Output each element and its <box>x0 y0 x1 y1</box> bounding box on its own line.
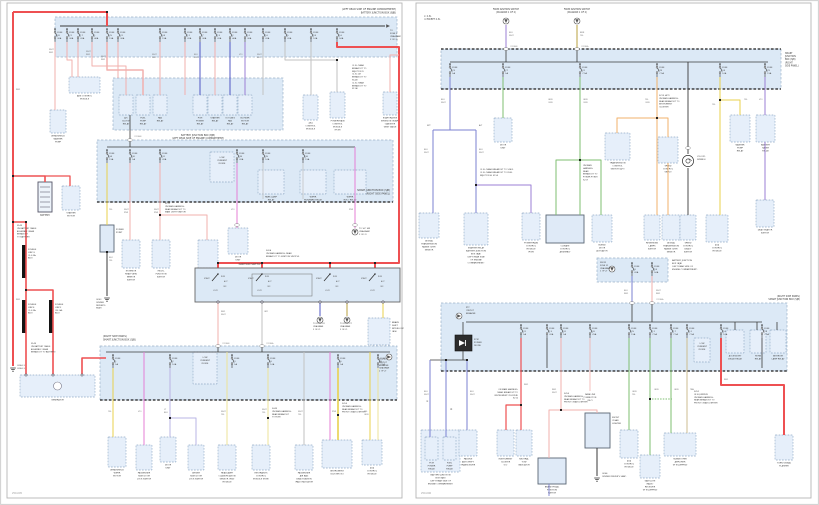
passenger-door-lock-switch <box>136 445 152 470</box>
smart-junction-box-right-top <box>441 49 781 89</box>
pad-indicator-caption: (PAD) INDICATOR <box>295 480 313 483</box>
powertrain-control-module-top-caption: CONTROL <box>332 123 343 125</box>
fuse-label: 10A <box>313 37 318 40</box>
fuse-symbol <box>159 31 161 33</box>
ignition-position-label: RUN <box>265 276 270 278</box>
dtr-sensor-1-caption: DIGITAL <box>425 239 434 242</box>
fuse-label: FUSE <box>634 266 640 268</box>
instrument-cluster-left-caption: CLUSTER (IC) <box>330 473 344 475</box>
restraints-control-module-caption: CONTROL <box>256 475 267 477</box>
diagram-text: FUSE 3 <box>390 33 398 35</box>
power-point <box>100 225 114 252</box>
diagram-text: (LEFT REAR SIDE OF <box>672 265 694 268</box>
low-current-diode-right-caption: LOW <box>700 343 705 345</box>
fuse-symbol <box>656 72 658 74</box>
fuse-label: FUSE <box>265 32 271 34</box>
fuse-symbol <box>579 72 581 74</box>
connector-oval <box>260 345 265 348</box>
fuse-label: FUSE <box>109 32 115 34</box>
diagram-text: WHT <box>152 54 157 56</box>
headlamp-classification-module-caption: HEADLAMP/ <box>221 471 234 474</box>
fusible-link-caption: FUSIBLE <box>28 304 37 306</box>
turn-signal-flasher <box>775 435 793 460</box>
diagram-text: (LEFT REAR SIDE OF ENGINE COMPARTMENT) <box>172 137 224 140</box>
multi-function-switch-caption: SWITCH <box>157 276 166 278</box>
fuse-symbol <box>159 158 161 160</box>
fuse-symbol <box>231 363 233 365</box>
4x4-control-module-right-bottom <box>620 430 638 458</box>
diagram-text: S255 <box>342 403 348 405</box>
fuse-symbol <box>184 31 186 33</box>
pad-indicator-caption: AIR BAG <box>300 474 309 477</box>
diagram-text: INJECTOR 4) S114 <box>480 175 499 177</box>
windshield-wiper-motor-caption: WINDSHIELD <box>110 469 124 471</box>
starter-relay-bjb-caption: BATTERY JUNCTION <box>466 249 486 252</box>
fuel-pump-relay-2-caption: FUEL <box>447 462 453 464</box>
fuse-symbol <box>244 37 246 39</box>
diagram-text: WHT <box>124 209 129 211</box>
instrument-cluster-right <box>497 430 514 456</box>
fuse-symbol <box>267 363 269 365</box>
powertrain-control-module-top-caption: POWERTRAIN <box>331 119 345 122</box>
fuse-label: FUSE <box>162 32 168 34</box>
fuse-label: 10A <box>265 158 270 161</box>
brake-pedal-position-switch-caption: BRAKE PEDAL <box>545 485 560 488</box>
splice-node <box>445 359 447 361</box>
diagram-text: C2280A <box>266 342 274 345</box>
diagram-text: WHT <box>424 152 429 154</box>
splice-node <box>12 221 14 223</box>
climate-control-assembly-caption: ASSEMBLY <box>560 250 571 253</box>
diagram-text: (DLC) <box>587 400 593 402</box>
diagram-text: 250-005 <box>12 492 22 495</box>
starter-relay-bjb-caption: STARTER RELAY <box>468 246 485 249</box>
diagram-text: TO FUSE 27 <box>340 323 352 325</box>
fuse-symbol <box>236 152 238 154</box>
passive-anti-theft-transceiver-caption: TRANSCEIVER <box>461 463 476 466</box>
washer-pump-relay <box>730 115 750 142</box>
fuse-label: FUSE <box>69 32 75 34</box>
diagram-text: TO BATTERY) <box>17 236 30 239</box>
pcm-power-relay-caption: PCM <box>198 117 203 119</box>
ignition-position-label: OFF <box>380 286 383 288</box>
exterior-mirror-switch-caption: REAR VIEW <box>125 272 137 275</box>
fuse-label: 20A <box>239 158 244 161</box>
low-current-diode-mid-caption: LOW <box>220 157 225 159</box>
fuse-label: 10A <box>270 363 275 366</box>
fuel-pump-relay-caption: PUMP <box>140 120 147 122</box>
diagram-text: S204 <box>266 250 272 252</box>
fusible-link-caption: BLK) <box>28 313 33 315</box>
fuse-symbol <box>686 327 688 329</box>
fuse-symbol <box>764 72 766 74</box>
diagram-text: POWER POINT) <box>583 177 598 179</box>
diagram-text: (IN MAIN HARNESS, <box>165 205 185 208</box>
starter-relay-bjb-caption: (LEFT REAR SIDE <box>467 255 485 258</box>
windshield-washer-pump-caption: WINDSHIELD <box>51 135 65 137</box>
deactivator-switch <box>756 200 774 227</box>
satellite-radio-receiver <box>640 455 660 478</box>
power-point-caption: POINT <box>116 232 123 234</box>
diagram-text: TO <box>390 30 393 32</box>
diagram-text: MAIN LIGHT SWITCH) <box>165 211 186 214</box>
fusible-link-caption: BLU) <box>55 313 60 315</box>
driver-door-lock-switch-caption: DRIVER <box>192 472 200 474</box>
ignition-position-label: OFF <box>335 286 338 288</box>
diagram-text: G204 <box>602 473 608 475</box>
diagram-text: CIRCUIT <box>379 362 388 364</box>
instrument-cluster-right-caption: CLUSTER <box>501 461 511 463</box>
passenger-door-lock-switch-caption: PASSENGER <box>138 471 151 474</box>
diagram-text: ORN <box>645 102 650 104</box>
diagram-text: NEAR BREAKOUT TO <box>498 391 519 394</box>
diagram-text: RED <box>86 54 91 56</box>
fuse-label: 30A <box>202 37 207 40</box>
speed-control-deact-switch <box>680 215 696 240</box>
fuse-symbol <box>761 327 763 329</box>
splice-node <box>337 414 339 416</box>
fuse-label: 20A <box>265 37 270 40</box>
diagram-text: S251 <box>694 391 700 393</box>
diagram-text: FRONT CIGAR LIGHTER) <box>564 401 588 404</box>
satellite-radio-receiver-caption: (IF EQUIPPED) <box>643 489 658 491</box>
fuse-symbol <box>720 327 722 329</box>
diagram-text: WHT <box>509 35 514 37</box>
fuse-symbol <box>560 333 562 335</box>
battery-saver-relay-caption: BATTERY <box>761 143 771 146</box>
starter-motor-caption: STARTER <box>66 211 76 214</box>
splice-node <box>374 262 376 264</box>
brake-pedal-position-switch <box>538 458 566 484</box>
ignition-position-label: START <box>248 277 254 280</box>
battery-caption: BATTERY <box>40 214 50 217</box>
pad-indicator-caption: DEACTIVATION <box>296 477 312 480</box>
clockspring-symbol <box>682 155 693 166</box>
fuse-symbol <box>91 37 93 39</box>
diagram-text: BLU <box>164 412 168 414</box>
interior-lamp-relay-caption: LAMP RELAY <box>772 357 786 360</box>
diagram-text: S255 <box>564 393 570 395</box>
4x4-control-module-right-bottom-caption: MODULE <box>624 466 634 468</box>
low-current-diode-mid-caption: DIODE <box>219 163 226 165</box>
fuse-label: 25A <box>592 333 597 336</box>
blend-door-actuator-caption: BLEND <box>598 244 605 246</box>
fuse-symbol <box>106 31 108 33</box>
pcm-power-diode-caption: DIODE <box>474 345 481 347</box>
fuse-symbol <box>169 363 171 365</box>
dtr-sensor-2-caption: DIGITAL <box>667 241 676 244</box>
neutral-tow-indicator-caption: NEUTRAL <box>519 457 529 460</box>
fuse-symbol <box>579 66 581 68</box>
fuse-symbol <box>546 327 548 329</box>
pin <box>217 301 219 303</box>
ac-clutch-relay-caption: CLUTCH <box>122 120 131 122</box>
fuse-label: FUSE <box>247 32 253 34</box>
diagram-text: S211 <box>165 203 171 205</box>
fuse-label: FUSE <box>339 32 345 34</box>
diagram-text: WHT <box>221 411 226 413</box>
ignition-position-label: OFF <box>267 286 270 288</box>
fuse-symbol <box>267 357 269 359</box>
diagram-text: BATTERY JUNCTION BOX (BJB) <box>361 11 396 14</box>
fuse-label: FUSE <box>232 32 238 34</box>
door-unit-right-caption: DOOR <box>500 144 507 146</box>
splice-node <box>579 159 581 161</box>
diagram-text: (IN MAIN HARNESS, <box>694 396 714 399</box>
fuse-label: FUSE <box>94 32 100 34</box>
park-lamp-relay <box>258 170 284 194</box>
starter-motor <box>62 186 80 210</box>
diagram-text: NEAR BREAKOUT TO <box>342 408 363 411</box>
diagram-text: (RIGHT SIDE PANEL) <box>366 192 390 195</box>
interior-lamp-relay <box>770 330 786 353</box>
pin <box>25 374 27 376</box>
pcm-power-relay-2-caption: POWER <box>428 465 436 467</box>
fuse-label: FUSE <box>452 67 458 69</box>
4x4-control-module-right-top-caption: 4X4 <box>715 244 720 246</box>
splice-node <box>649 398 651 400</box>
diagram-text: NEAR BREAKOUT TO <box>564 398 585 401</box>
diagram-text: BLU <box>424 391 428 393</box>
low-current-diode-right-caption: DIODE <box>699 349 706 351</box>
ignition-position-label: LOCK <box>325 290 331 292</box>
power-point-caption: POWER <box>116 229 124 231</box>
starter-relay-bjb <box>464 213 488 245</box>
fuse-label: 20A <box>287 37 292 40</box>
fuse-symbol <box>560 327 562 329</box>
pin <box>52 374 54 376</box>
pcm-power-diode-caption: PCM <box>474 339 479 341</box>
diagram-text: WHT <box>101 56 106 58</box>
diagram-text: (DIAGRAM <box>379 367 389 370</box>
neutral-tow-indicator-caption: INDICATOR <box>518 463 530 466</box>
starter-motor-caption: MOTOR <box>67 215 75 217</box>
fuse-label: FUSE <box>673 328 679 330</box>
diagram-text: S212 <box>513 398 519 400</box>
multi-function-switch-caption: MULTI- <box>158 270 165 272</box>
diagram-text: PNK <box>154 212 159 214</box>
fuse-label: 7.5A <box>582 72 587 75</box>
fuse-label: 40A <box>94 37 99 40</box>
bjb-bottom-wrap-caption: (LEFT REAR SIDE OF <box>430 479 452 482</box>
diagram-text: WHT <box>262 409 267 411</box>
fuse-symbol <box>159 152 161 154</box>
fuse-symbol <box>449 72 451 74</box>
diagram-text: C2280B <box>134 136 142 138</box>
ignition-position-label: LOCK <box>370 290 376 292</box>
speed-control-deact-switch-caption: SWITCH <box>684 251 693 253</box>
diagram-text: SMART JUNCTION BOX (SJB) <box>103 338 136 341</box>
fuse-label: 20A <box>634 271 639 274</box>
fuse-label: 30A <box>69 37 74 40</box>
speed-control-deact-switch-caption: CONTROL <box>683 245 694 247</box>
diagram-text: 2 OF 2) <box>379 371 387 373</box>
4x4-control-module-bottom-left-caption: 4X4 <box>370 467 375 469</box>
fuse-symbol <box>236 158 238 160</box>
fuse-label: FUSE <box>115 358 121 360</box>
fuse-label: FUSE <box>523 328 529 330</box>
diagram-text: C2280B <box>222 343 230 345</box>
diagram-text: WHT <box>656 290 661 292</box>
diagram-text: (IN BATTERY CABLE <box>31 345 51 348</box>
diagram-text: NEAR <box>583 170 589 173</box>
diagram-text: (DIAGRAM <box>390 35 401 38</box>
diagram-text: CLUSTER) <box>659 107 669 109</box>
diagram-text: BREAKOUT TO BATTERY) <box>31 351 56 354</box>
diagram-text: S143) <box>352 80 358 82</box>
splice-node <box>267 417 269 419</box>
fuse-symbol <box>199 37 201 39</box>
exterior-mirror-switch <box>122 240 140 268</box>
cooling-fan-relay-caption: COOLING <box>225 117 235 119</box>
windshield-washer-pump <box>50 110 66 133</box>
fuse-label: FUSE <box>592 328 598 330</box>
ignition-position-label: START <box>316 277 322 280</box>
pin <box>382 301 384 303</box>
fan-relay-caption: FAN <box>158 116 162 119</box>
park-lamp-relay-caption: RELAY <box>268 198 275 201</box>
diagram-text: WHT <box>479 152 484 154</box>
blower-motor-relay <box>238 95 252 115</box>
park-lamp-relay-caption: PARK LAMP <box>265 195 277 198</box>
instrument-cluster-left-caption: INSTRUMENT <box>330 470 344 472</box>
splice-node <box>329 262 331 264</box>
diagram-text: GRN <box>583 99 588 101</box>
driver-door-lock-switch-caption: SIDE DOOR <box>190 475 202 477</box>
pad-indicator <box>295 445 313 470</box>
diagram-text: RED <box>16 299 21 301</box>
diagram-text: PNK <box>332 411 337 413</box>
door-unit-mid-caption: DOOR <box>235 256 242 258</box>
fuse-label: 20A <box>549 333 554 336</box>
powertrain-control-module-top-caption: MODULE <box>333 126 343 128</box>
fuse-symbol <box>628 333 630 335</box>
connector-oval <box>650 302 655 305</box>
fuse-symbol <box>670 333 672 335</box>
diagram-text: RED <box>656 293 661 295</box>
fuse-symbol <box>129 152 131 154</box>
fuse-symbol <box>117 31 119 33</box>
fuse-label: 20A <box>80 37 85 40</box>
starter-relay-caption: RELAY <box>212 119 219 122</box>
restraints-control-module <box>252 445 270 470</box>
bjb-bottom-wrap-caption: BATTERY JUNCTION <box>431 473 451 476</box>
blend-door-actuator-caption: ACTUATOR <box>596 249 608 252</box>
transmission-control-switch <box>605 133 630 160</box>
diagram-text: 2 OF 2) <box>359 234 367 236</box>
wiper-run-park-relay-caption: WIPER <box>310 196 317 198</box>
pcm-power-diode-caption: POWER <box>474 342 482 344</box>
fuse-label: FUSE <box>202 32 208 34</box>
diagram-text: NEAR BREAKOUT TO <box>694 399 715 402</box>
4x4-control-module-top-caption: 4X4 <box>308 122 313 124</box>
fuse-label: 15A <box>767 72 772 75</box>
diagram-text: DATA LINK <box>585 393 596 396</box>
diagram-text: ORN <box>583 102 588 104</box>
diagram-text: RED <box>624 293 629 295</box>
dtr-sensor-1-caption: SENSOR <box>425 249 434 251</box>
battery-saver-relay <box>756 115 775 142</box>
climate-control-assembly <box>546 215 584 243</box>
diagram-text: S143 <box>17 225 23 227</box>
speed-control-deact-switch-caption: DEACT <box>684 247 692 250</box>
fuse-label: 15A <box>631 333 636 336</box>
fuse-label: 7.5A <box>652 333 657 336</box>
diagram-text: RED <box>724 379 729 381</box>
diagram-text: BLU <box>424 149 428 151</box>
evap-canister-vent-valve-caption: VENT VALVE <box>384 125 397 128</box>
generator-caption: GENERATOR <box>51 398 64 401</box>
ac-clutch-relay <box>119 95 133 115</box>
diagram-text: RED <box>221 311 226 313</box>
ignition-position-label: OFF <box>223 286 226 288</box>
diagram-text: GRN <box>654 389 659 391</box>
diagram-text: (IN MAIN <box>583 164 592 167</box>
diagram-text: WHT <box>86 51 91 53</box>
brake-shift-interlock-caption: (BSI) <box>392 331 397 333</box>
fuse-label: 7.5A <box>764 333 769 336</box>
fusible-link-caption: LINK G <box>28 252 35 254</box>
fuse-label: FUSE <box>265 153 271 155</box>
diagram-text: ② EXCEPT 2.3L <box>424 18 441 21</box>
dtr-sensor-2 <box>662 215 680 240</box>
fuse-symbol <box>112 363 114 365</box>
fusible-link-caption: LINK E <box>28 307 35 309</box>
4x4-control-module-bottom-left-caption: MODULE <box>367 473 377 475</box>
diagram-text: C2280B <box>510 46 518 48</box>
fuse-symbol <box>231 357 233 359</box>
washer-pump-relay-caption: RELAY <box>737 149 744 152</box>
fuse-label: FUSE <box>120 32 126 34</box>
diagram-text: BLU <box>509 32 513 34</box>
diagram-text: ENGINE COMPARTMENT) <box>672 268 698 271</box>
diagram-text: (2.3L: NEAR BREAKOUT TO FUEL <box>480 171 513 174</box>
diagram-text: NEAR BREAKOUT TO <box>659 100 680 103</box>
door-unit-bottom-caption: DOOR <box>165 464 172 466</box>
battery-saver-relay-caption: RELAY <box>762 149 769 152</box>
diagram-text: TO S/C SW <box>359 228 370 230</box>
diagram-text: ASSEMBLY, NEAR <box>17 230 35 233</box>
fuse-symbol <box>106 37 108 39</box>
interior-lamp-relay-caption: INTERIOR <box>773 355 783 357</box>
diagram-text: ORN <box>548 102 553 104</box>
fuse-symbol <box>184 37 186 39</box>
4x4-control-module-right-top-caption: CONTROL <box>712 247 723 249</box>
door-unit-bottom-caption: UNIT <box>166 467 172 469</box>
fuse-symbol <box>589 333 591 335</box>
pin <box>81 374 83 376</box>
diagram-text: RED <box>49 52 54 54</box>
fuse-label: 15A <box>305 158 310 161</box>
blower-motor-relay-caption: RELAY <box>242 122 249 125</box>
abs-control-module-caption: ABS CONTROL <box>77 94 93 97</box>
accessory-delay-relay <box>726 330 744 353</box>
fuse-symbol <box>159 37 161 39</box>
fuse-label: FUSE <box>287 32 293 34</box>
diagram-text: WHT <box>424 394 429 396</box>
diagram-text: BLU <box>194 54 198 56</box>
fuse-label: FUSE <box>187 32 193 34</box>
fuse-label: FUSE <box>563 328 569 330</box>
diagram-text: TO FUSE 22 <box>313 323 325 325</box>
smart-junction-box-lower-left <box>100 346 397 400</box>
fuse-label: FUSE <box>80 32 86 34</box>
fuse-symbol <box>229 37 231 39</box>
diagram-text: (IN MAIN HARNESS, <box>342 405 362 408</box>
door-unit-right-caption: UNIT <box>501 147 507 149</box>
diagram-text: CONNECTOR <box>584 397 597 399</box>
accessory-delay-relay-caption: ACCESSORY <box>729 354 742 357</box>
